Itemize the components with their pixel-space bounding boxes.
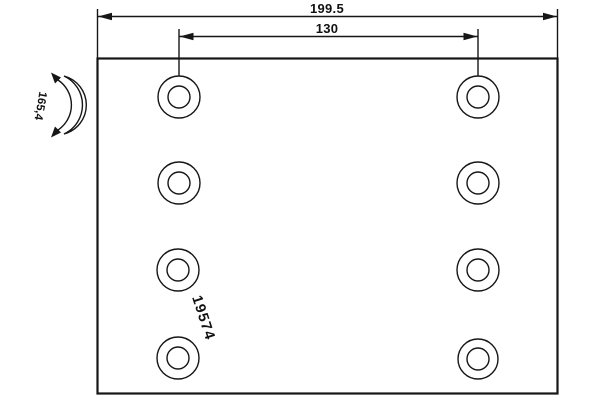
- technical-drawing: 199.5 130 165,4: [0, 0, 600, 400]
- mounting-hole: [157, 249, 199, 291]
- curvature-symbol: 165,4: [32, 73, 87, 138]
- arrowhead-left-icon: [98, 13, 112, 20]
- mounting-hole: [458, 339, 498, 379]
- mounting-hole: [457, 249, 499, 291]
- arrowhead-left-icon: [180, 33, 194, 40]
- mounting-hole: [157, 337, 199, 379]
- arc-with-arrows: [58, 80, 71, 130]
- part-number-label: 19574: [188, 293, 218, 342]
- overall-width-label: 199.5: [310, 1, 344, 16]
- mounting-hole: [457, 162, 499, 204]
- lining-section-crescent: [64, 76, 86, 134]
- dimension-hole-spacing: 130: [179, 21, 478, 76]
- arrowhead-right-icon: [464, 33, 478, 40]
- mounting-hole: [158, 76, 200, 118]
- arrowhead-right-icon: [543, 13, 557, 20]
- arc-radius-label: 165,4: [32, 91, 49, 122]
- hole-spacing-label: 130: [316, 21, 339, 36]
- lining-plate-outline: [98, 59, 558, 394]
- mounting-hole: [457, 76, 499, 118]
- mounting-hole: [158, 162, 200, 204]
